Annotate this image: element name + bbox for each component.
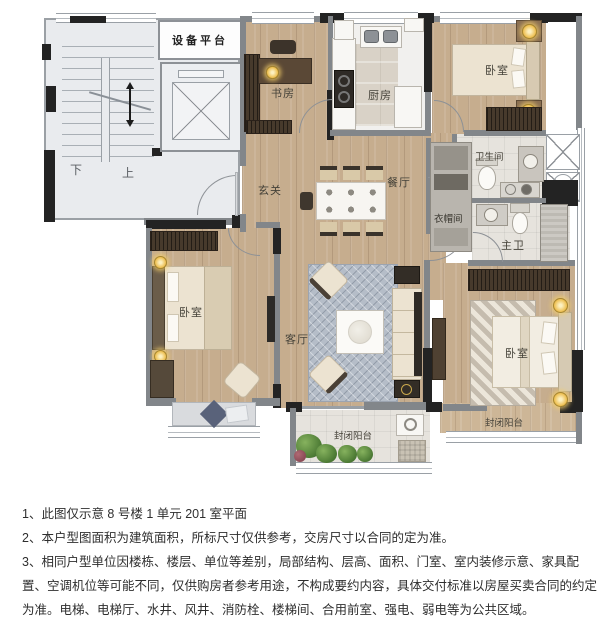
arrow-up-icon — [126, 82, 134, 89]
toilet — [512, 212, 528, 234]
dining-chair — [366, 222, 383, 236]
master-bedroom-label: 卧室 — [505, 345, 529, 361]
bedroom1-label: 卧室 — [179, 304, 203, 320]
foyer-label: 玄关 — [258, 182, 282, 198]
stairs-down-label: 下 — [70, 161, 83, 178]
master-bath-label: 主卫 — [501, 237, 525, 253]
cloak-shelf — [434, 228, 468, 246]
dining-side-chair — [300, 192, 313, 210]
shower — [540, 204, 568, 262]
wall-segment — [42, 44, 51, 60]
sofa-back — [414, 292, 422, 376]
floor-plan: 下 上 设备平台 — [0, 0, 615, 500]
entry-door-leaf — [235, 172, 238, 216]
sliding-door — [302, 406, 364, 409]
small-appliance — [334, 20, 354, 40]
desk — [150, 360, 174, 398]
wall-segment — [576, 16, 582, 130]
flower-plant — [294, 450, 306, 462]
vent-shaft — [546, 134, 580, 170]
note-line-1: 1、此图仅示意 8 号楼 1 单元 201 室平面 — [22, 502, 600, 526]
sink-basin — [364, 30, 379, 43]
wall-segment — [330, 130, 428, 136]
hall-cabinet — [432, 318, 446, 380]
washer-drum — [521, 184, 532, 195]
pillow — [167, 272, 179, 302]
wall-segment — [273, 228, 281, 254]
bed-blanket — [204, 266, 232, 350]
cloak-shelf — [434, 174, 468, 190]
wall-segment — [44, 150, 55, 222]
window — [252, 12, 314, 24]
small-appliance — [404, 18, 424, 32]
kitchen-label: 厨房 — [368, 87, 392, 103]
lamp — [154, 256, 167, 269]
table-decor — [348, 320, 372, 344]
stairs-up-label: 上 — [122, 164, 135, 181]
elevator-door — [178, 70, 224, 78]
washer-drum — [505, 184, 516, 195]
kitchen-cabinet — [394, 86, 422, 128]
dining-chair — [366, 166, 383, 180]
study-chair — [270, 40, 296, 54]
side-table — [394, 266, 420, 284]
bed-headboard — [152, 266, 165, 350]
balcony-right-label: 封闭阳台 — [485, 415, 523, 429]
bedroom2-label: 卧室 — [485, 62, 509, 78]
wall-lamp — [266, 66, 279, 79]
wall-segment — [576, 412, 582, 444]
burner — [338, 91, 350, 103]
wall-segment — [364, 402, 430, 410]
window — [446, 431, 576, 443]
plant — [316, 444, 337, 463]
bed-headboard — [558, 312, 572, 392]
dining-table — [316, 182, 386, 220]
floor-lamp — [401, 384, 412, 395]
lamp — [522, 24, 537, 39]
bed-headboard — [526, 40, 540, 100]
disclaimer-notes: 1、此图仅示意 8 号楼 1 单元 201 室平面 2、本户型图面积为建筑面积，… — [22, 502, 600, 621]
note-line-3: 3、相同户型单位因楼栋、楼层、单位等差别，局部结构、层高、面积、门室、室内装修示… — [22, 550, 600, 621]
pillow — [511, 69, 526, 88]
sink-basin — [383, 30, 398, 43]
study-shelf — [246, 120, 292, 134]
wall-segment — [70, 16, 106, 23]
elevator-cab — [172, 82, 230, 140]
burner — [338, 75, 350, 87]
note-line-2: 2、本户型图面积为建筑面积，所标尺寸仅供参考，交房尺寸以合同的定为准。 — [22, 526, 600, 550]
cushion — [225, 405, 249, 424]
floor-mat — [398, 440, 426, 462]
basin — [484, 208, 498, 222]
wall-segment — [424, 14, 432, 92]
study-label: 书房 — [271, 85, 295, 101]
wall-segment — [542, 180, 578, 206]
wardrobe — [486, 107, 542, 131]
wall-segment — [252, 398, 280, 406]
bathroom-label: 卫生间 — [475, 149, 504, 163]
dining-chair — [320, 222, 337, 236]
plant — [357, 446, 373, 462]
wall-segment — [423, 348, 432, 406]
pillow — [541, 351, 558, 375]
wall-segment — [426, 402, 442, 412]
washer-door — [404, 418, 417, 431]
dining-chair — [320, 166, 337, 180]
stair-stringer — [101, 58, 110, 162]
stair-direction-arrow — [129, 88, 131, 122]
dining-label: 餐厅 — [387, 174, 411, 190]
kitchen-island — [356, 44, 398, 126]
dining-chair — [343, 222, 360, 236]
window — [577, 264, 585, 350]
wall-segment — [572, 350, 583, 412]
cloak-shelf — [434, 146, 468, 170]
pillow — [541, 321, 558, 345]
living-label: 客厅 — [285, 331, 309, 347]
dining-chair — [343, 166, 360, 180]
wardrobe — [150, 231, 218, 251]
floor-plan-page: 下 上 设备平台 — [0, 0, 615, 621]
lamp — [553, 298, 568, 313]
arrow-down-icon — [126, 120, 134, 127]
cloakroom-label: 衣帽间 — [434, 211, 463, 225]
window — [296, 462, 432, 474]
basin — [523, 154, 538, 169]
wall-segment — [424, 260, 430, 348]
wall-segment — [146, 220, 226, 229]
wardrobe — [468, 269, 570, 291]
equipment-platform-label: 设备平台 — [172, 32, 228, 48]
pillow — [167, 314, 179, 342]
balcony-left-label: 封闭阳台 — [334, 428, 372, 442]
tv — [267, 296, 275, 342]
toilet — [478, 166, 496, 190]
lamp — [553, 392, 568, 407]
plant — [338, 445, 357, 463]
pillow — [511, 47, 526, 67]
wall-segment — [46, 86, 56, 112]
